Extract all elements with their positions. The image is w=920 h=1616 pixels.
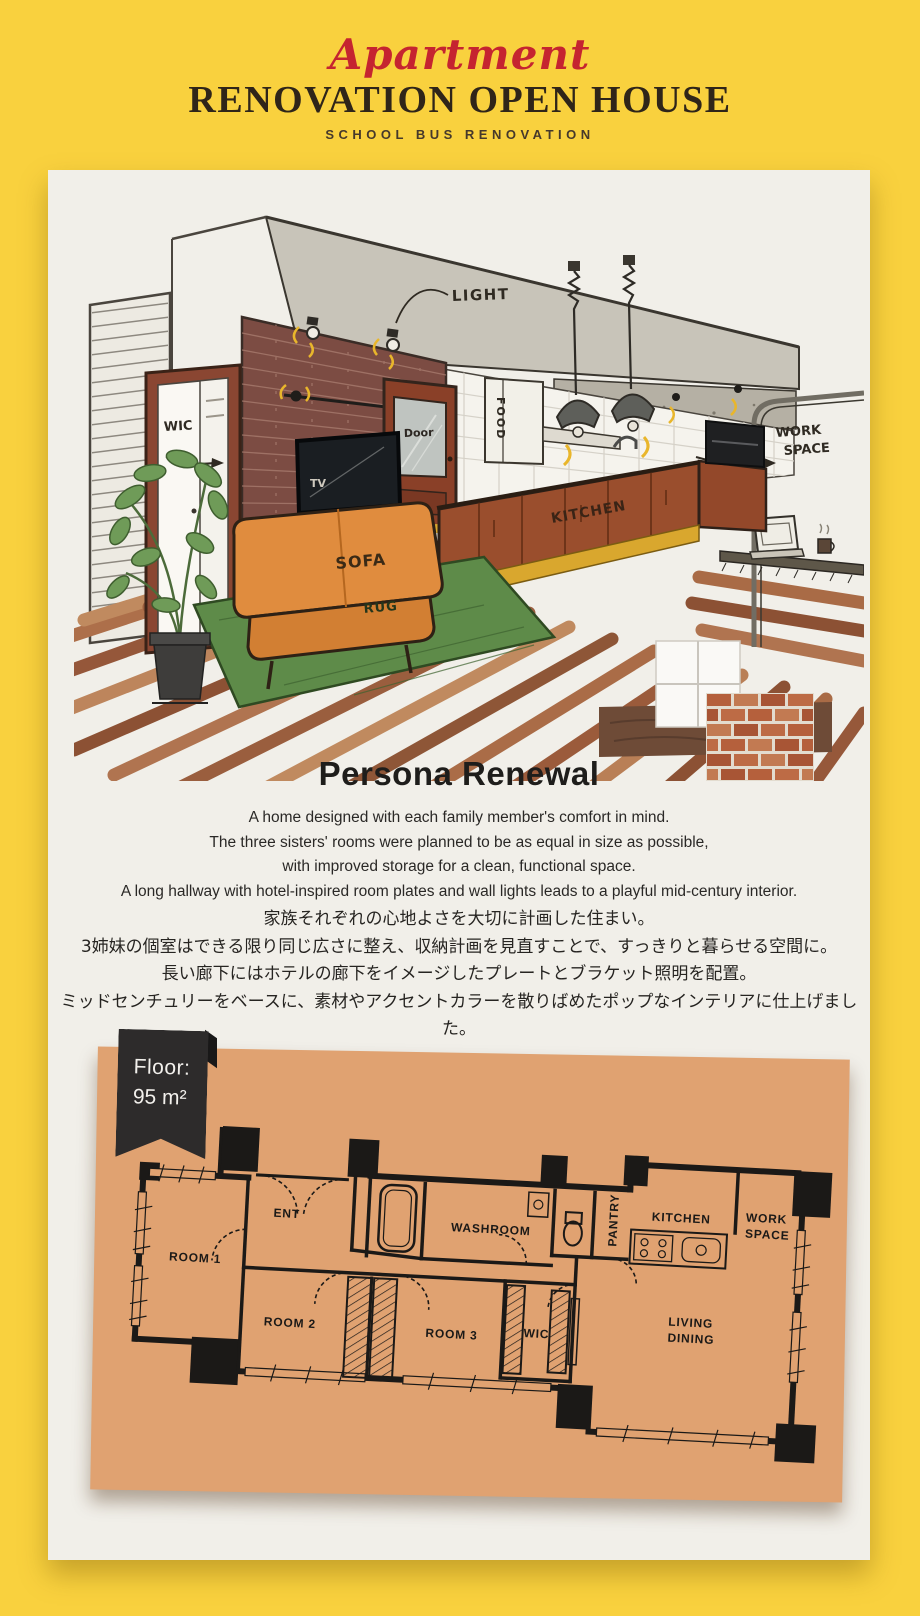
floor-area-label: Floor:	[133, 1055, 190, 1080]
english-line: with improved storage for a clean, funct…	[48, 855, 870, 880]
plan-wic-label: WIC	[523, 1326, 549, 1341]
japanese-line: 家族それぞれの心地よさを大切に計画した住まい。	[48, 906, 870, 934]
plan-ent-label: ENT	[273, 1206, 300, 1221]
tv-label: TV	[310, 477, 327, 490]
main-title: RENOVATION OPEN HOUSE	[0, 78, 920, 122]
english-line: A long hallway with hotel-inspired room …	[48, 880, 870, 905]
script-title: Apartment	[0, 30, 920, 79]
plan-windows	[125, 1164, 813, 1451]
poster-page: Apartment RENOVATION OPEN HOUSE SCHOOL B…	[0, 0, 920, 1616]
plan-room1-label: ROOM 1	[169, 1249, 222, 1266]
plan-living-label-1: LIVING	[668, 1315, 713, 1331]
japanese-line: 長い廊下にはホテルの廊下をイメージしたプレートとブラケット照明を配置。	[48, 961, 870, 989]
plan-washroom-label: WASHROOM	[451, 1220, 531, 1238]
workspace-label-2: SPACE	[783, 441, 830, 459]
japanese-line: 3姉妹の個室はできる限り同じ広さに整え、収納計画を見直すことで、すっきりと暮らせ…	[48, 934, 870, 962]
workspace-label-1: WORK	[775, 423, 822, 441]
plan-workspace-label-2: SPACE	[745, 1227, 790, 1243]
english-paragraph: A home designed with each family member'…	[48, 806, 870, 904]
mug	[818, 539, 831, 553]
plan-kitchen-label: KITCHEN	[651, 1210, 711, 1227]
plan-living-label-2: DINING	[667, 1331, 714, 1347]
paper-sheet: WIC Door FOOD	[48, 170, 870, 1560]
light-label: LIGHT	[452, 285, 510, 305]
plan-pantry-label: PANTRY	[605, 1193, 622, 1246]
japanese-paragraph: 家族それぞれの心地よさを大切に計画した住まい。 3姉妹の個室はできる限り同じ広さ…	[48, 906, 870, 1044]
sub-title: SCHOOL BUS RENOVATION	[0, 127, 920, 142]
floor-area-value: 95 m²	[133, 1085, 187, 1110]
section-title: Persona Renewal	[48, 755, 870, 793]
plan-room2-label: ROOM 2	[263, 1314, 316, 1331]
english-line: The three sisters' rooms were planned to…	[48, 831, 870, 856]
interior-sketch: WIC Door FOOD	[54, 175, 864, 781]
plan-room3-label: ROOM 3	[425, 1326, 478, 1343]
rug-label: RUG	[363, 599, 398, 617]
door-label: Door	[404, 426, 435, 440]
plan-workspace-label-1: WORK	[746, 1211, 788, 1227]
food-label: FOOD	[494, 397, 507, 440]
wic-label: WIC	[163, 419, 192, 435]
english-line: A home designed with each family member'…	[48, 806, 870, 831]
